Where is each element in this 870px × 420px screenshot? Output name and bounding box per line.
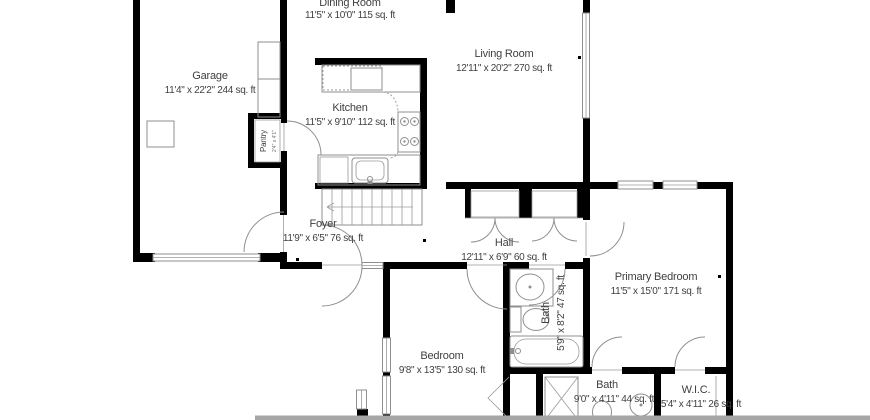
front-entry-door-arc (322, 266, 362, 306)
primary-bath-dims: 9'0" x 4'11" 44 sq. ft (574, 394, 655, 405)
bathtub-icon (510, 336, 583, 367)
foyer-dims: 11'9" x 6'5" 76 sq. ft (283, 233, 364, 244)
living-room-window (583, 13, 590, 118)
dishwasher-icon (323, 66, 382, 90)
labels: Garage 11'4" x 22'2" 244 sq. ft Dining R… (165, 0, 742, 410)
counter-edge-dashed (383, 92, 398, 112)
hall-bath-label: Bath (540, 302, 552, 324)
hall-label: Hall (495, 237, 513, 249)
living-room-label: Living Room (475, 48, 534, 60)
stove-icon (398, 112, 420, 152)
kitchen-dims: 11'5" x 9'10" 112 sq. ft (305, 117, 396, 128)
garage-door (153, 254, 260, 261)
bedroom-dims: 9'8" x 13'5" 130 sq. ft (399, 365, 486, 376)
primary-bedroom-label: Primary Bedroom (615, 271, 698, 283)
closet-box (471, 191, 519, 217)
wic-label: W.I.C. (682, 384, 711, 396)
primary-bedroom-window (618, 181, 653, 189)
kitchen-appliance (351, 68, 382, 90)
water-heater-icon (147, 121, 174, 147)
wic-door-arc (675, 337, 705, 367)
kitchen-counter (322, 65, 420, 92)
living-room-dims: 12'11" x 20'2" 270 sq. ft (456, 63, 553, 74)
dining-room-label: Dining Room (319, 0, 380, 9)
hall-dims: 12'11" x 6'9" 60 sq. ft (461, 252, 547, 263)
bedroom-label: Bedroom (420, 350, 463, 362)
stairs-direction-arrow (327, 203, 413, 211)
wic-dims: 5'4" x 4'11" 26 sq. ft (661, 399, 742, 410)
primary-bath-label: Bath (596, 379, 618, 391)
kitchen-sink-icon (352, 158, 388, 184)
primary-bedroom-door-arc (590, 222, 624, 256)
foyer-label: Foyer (309, 218, 337, 230)
garage-dims: 11'4" x 22'2" 244 sq. ft (165, 85, 256, 96)
kitchen-cabinet (320, 157, 348, 183)
storage-cabinet-icon (258, 79, 280, 117)
dining-room-dims: 11'5" x 10'0" 115 sq. ft (305, 10, 396, 21)
garage-label: Garage (192, 70, 228, 82)
floor-plan-page: Garage 11'4" x 22'2" 244 sq. ft Dining R… (0, 0, 870, 420)
primary-bath-door-arc (592, 337, 622, 367)
primary-bedroom-window (663, 181, 697, 189)
stairs-icon (322, 189, 422, 225)
closet-bifold-door-arc (471, 218, 495, 242)
pantry-label: Pantry (259, 130, 268, 152)
floor-plan: Garage 11'4" x 22'2" 244 sq. ft Dining R… (0, 0, 870, 420)
kitchen-label: Kitchen (332, 102, 367, 114)
kitchen-counter (318, 155, 420, 185)
closet-bifold-door-arc (554, 218, 577, 241)
storage-cabinet-icon (258, 42, 280, 79)
bedroom-window (383, 376, 391, 414)
hall-bath-dims: 5'9" x 8'2" 47 sq. ft (556, 275, 567, 351)
primary-bedroom-dims: 11'5" x 15'0" 171 sq. ft (611, 286, 702, 297)
entry-sidelight-window (362, 263, 383, 269)
closet-bifold-door-arc (532, 218, 554, 241)
pantry-dims: 2'4" x 4'1" (272, 130, 278, 152)
closet-box (532, 191, 577, 217)
bedroom-door-arc (467, 269, 507, 309)
garage-foyer-door-arc (244, 212, 284, 252)
bedroom-window (383, 338, 391, 372)
plan-cut-edge (255, 416, 870, 420)
front-entry-door-arc (322, 225, 362, 265)
porch-window (357, 390, 367, 409)
